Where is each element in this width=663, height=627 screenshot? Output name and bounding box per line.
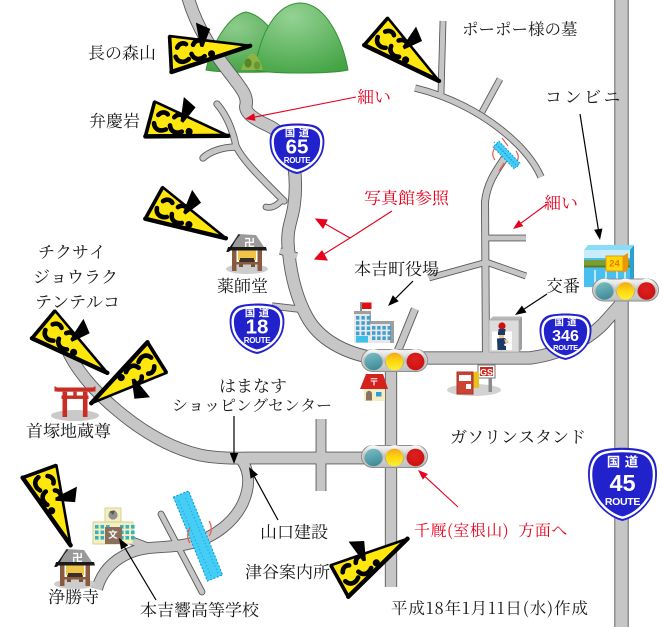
svg-text:GS: GS [480,368,493,378]
svg-text:ROUTE: ROUTE [553,343,578,352]
svg-text:ROUTE: ROUTE [284,156,311,165]
svg-text:ROUTE: ROUTE [244,336,271,345]
svg-text:24: 24 [609,259,620,270]
svg-text:ROUTE: ROUTE [605,496,641,508]
svg-text:18: 18 [246,315,269,338]
svg-text:45: 45 [609,470,635,496]
svg-text:65: 65 [286,135,309,158]
